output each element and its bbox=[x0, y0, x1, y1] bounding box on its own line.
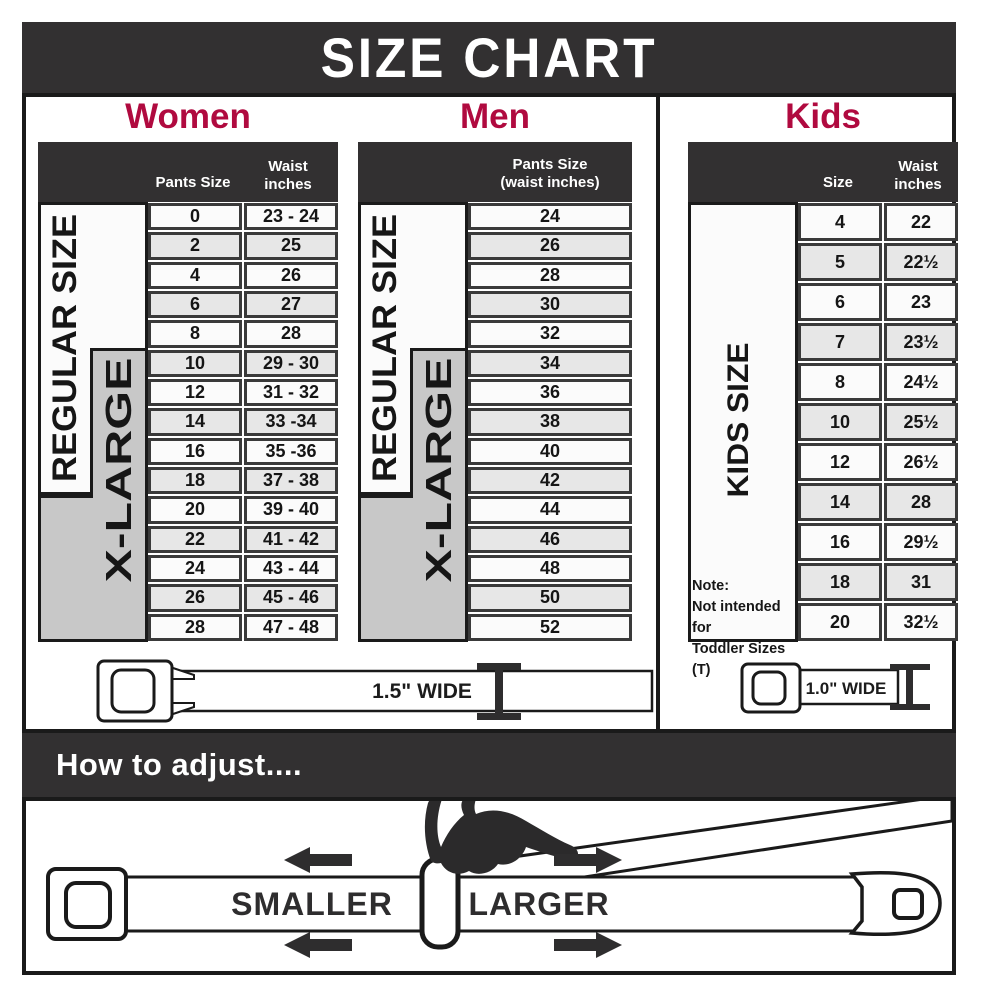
kids-belt-illustration: 1.0" WIDE bbox=[738, 652, 943, 724]
pants-size-cell: 38 bbox=[468, 408, 632, 435]
table-row: 10 25½ bbox=[798, 402, 958, 442]
pants-size-cell: 28 bbox=[468, 262, 632, 289]
waist-cell: 31 bbox=[884, 563, 958, 601]
table-row: 2 25 bbox=[148, 231, 338, 260]
size-cell: 4 bbox=[798, 203, 882, 241]
women-table-header: Pants Size Waist inches bbox=[38, 142, 338, 202]
table-row: 16 35 -36 bbox=[148, 437, 338, 466]
table-row: 42 bbox=[468, 466, 632, 495]
table-row: 44 bbox=[468, 495, 632, 524]
table-row: 28 47 - 48 bbox=[148, 613, 338, 642]
note-line: Note: bbox=[692, 576, 800, 597]
table-row: 14 28 bbox=[798, 482, 958, 522]
pants-size-cell: 10 bbox=[148, 350, 242, 377]
kids-section-title: Kids bbox=[688, 97, 958, 137]
size-chart-banner: SIZE CHART bbox=[22, 22, 956, 93]
kids-size-header: Size bbox=[798, 174, 878, 193]
men-table-header: Pants Size (waist inches) bbox=[358, 142, 632, 202]
table-row: 26 45 - 46 bbox=[148, 583, 338, 612]
adjust-heading: How to adjust.... bbox=[56, 747, 302, 783]
arrow-left-icon bbox=[284, 932, 352, 958]
panel-divider bbox=[656, 93, 660, 733]
pants-size-cell: 24 bbox=[468, 203, 632, 230]
table-row: 26 bbox=[468, 231, 632, 260]
size-cell: 8 bbox=[798, 363, 882, 401]
pants-size-cell: 46 bbox=[468, 526, 632, 553]
size-cell: 18 bbox=[798, 563, 882, 601]
table-row: 5 22½ bbox=[798, 242, 958, 282]
table-row: 30 bbox=[468, 290, 632, 319]
table-row: 4 22 bbox=[798, 202, 958, 242]
regular-size-label: REGULAR SIZE bbox=[366, 214, 404, 482]
kids-size-label: KIDS SIZE bbox=[722, 343, 755, 498]
pants-size-cell: 18 bbox=[148, 467, 242, 494]
table-row: 8 28 bbox=[148, 319, 338, 348]
table-row: 12 26½ bbox=[798, 442, 958, 482]
belt-tip-slot bbox=[894, 890, 922, 918]
waist-cell: 32½ bbox=[884, 603, 958, 641]
pants-size-cell: 2 bbox=[148, 232, 242, 259]
larger-label: LARGER bbox=[468, 886, 609, 922]
men-section-title: Men bbox=[358, 97, 632, 137]
pants-size-cell: 22 bbox=[148, 526, 242, 553]
buckle-window bbox=[66, 883, 110, 927]
pants-size-cell: 34 bbox=[468, 350, 632, 377]
buckle-window bbox=[112, 670, 154, 712]
waist-cell: 25 bbox=[244, 232, 338, 259]
waist-cell: 23 - 24 bbox=[244, 203, 338, 230]
table-row: 22 41 - 42 bbox=[148, 525, 338, 554]
waist-cell: 43 - 44 bbox=[244, 555, 338, 582]
arrow-left-icon bbox=[284, 847, 352, 873]
adjust-banner: How to adjust.... bbox=[22, 733, 956, 797]
table-row: 48 bbox=[468, 554, 632, 583]
table-row: 6 27 bbox=[148, 290, 338, 319]
waist-cell: 35 -36 bbox=[244, 438, 338, 465]
size-cell: 12 bbox=[798, 443, 882, 481]
xlarge-label: X-LARGE bbox=[418, 358, 459, 583]
size-cell: 20 bbox=[798, 603, 882, 641]
women-waist-header: Waist inches bbox=[238, 158, 338, 196]
pants-size-cell: 30 bbox=[468, 291, 632, 318]
waist-cell: 24½ bbox=[884, 363, 958, 401]
table-row: 36 bbox=[468, 378, 632, 407]
size-cell: 16 bbox=[798, 523, 882, 561]
waist-cell: 22 bbox=[884, 203, 958, 241]
pants-size-cell: 32 bbox=[468, 320, 632, 347]
size-cell: 5 bbox=[798, 243, 882, 281]
table-row: 7 23½ bbox=[798, 322, 958, 362]
size-cell: 10 bbox=[798, 403, 882, 441]
pants-size-cell: 4 bbox=[148, 262, 242, 289]
women-table-body: 0 23 - 24 2 25 4 26 6 27 8 28 10 29 - 30… bbox=[148, 202, 338, 642]
pants-size-cell: 16 bbox=[148, 438, 242, 465]
table-row: 16 29½ bbox=[798, 522, 958, 562]
size-chart-page: SIZE CHART Women Men Kids Pants Size Wai… bbox=[0, 0, 1000, 1000]
table-row: 52 bbox=[468, 613, 632, 642]
smaller-label: SMALLER bbox=[231, 886, 393, 922]
waist-cell: 25½ bbox=[884, 403, 958, 441]
waist-cell: 31 - 32 bbox=[244, 379, 338, 406]
waist-cell: 41 - 42 bbox=[244, 526, 338, 553]
pants-size-cell: 24 bbox=[148, 555, 242, 582]
pants-size-cell: 26 bbox=[468, 232, 632, 259]
regular-size-label: REGULAR SIZE bbox=[46, 214, 84, 482]
table-row: 14 33 -34 bbox=[148, 407, 338, 436]
table-row: 10 29 - 30 bbox=[148, 349, 338, 378]
note-line: Not intended for bbox=[692, 597, 800, 639]
waist-cell: 47 - 48 bbox=[244, 614, 338, 641]
page-title: SIZE CHART bbox=[321, 25, 658, 90]
waist-cell: 22½ bbox=[884, 243, 958, 281]
table-row: 32 bbox=[468, 319, 632, 348]
pants-size-cell: 42 bbox=[468, 467, 632, 494]
width-label: 1.0" WIDE bbox=[806, 679, 887, 698]
table-row: 20 32½ bbox=[798, 602, 958, 642]
waist-cell: 23½ bbox=[884, 323, 958, 361]
waist-cell: 29½ bbox=[884, 523, 958, 561]
table-row: 8 24½ bbox=[798, 362, 958, 402]
pants-size-cell: 48 bbox=[468, 555, 632, 582]
waist-cell: 39 - 40 bbox=[244, 496, 338, 523]
table-row: 4 26 bbox=[148, 261, 338, 290]
pants-size-cell: 50 bbox=[468, 584, 632, 611]
pants-size-cell: 6 bbox=[148, 291, 242, 318]
waist-cell: 37 - 38 bbox=[244, 467, 338, 494]
table-row: 24 bbox=[468, 202, 632, 231]
pants-size-cell: 14 bbox=[148, 408, 242, 435]
table-row: 18 31 bbox=[798, 562, 958, 602]
pants-size-cell: 40 bbox=[468, 438, 632, 465]
table-row: 40 bbox=[468, 437, 632, 466]
waist-cell: 45 - 46 bbox=[244, 584, 338, 611]
pants-size-cell: 44 bbox=[468, 496, 632, 523]
adult-belt-illustration: 1.5" WIDE bbox=[92, 655, 667, 730]
waist-cell: 33 -34 bbox=[244, 408, 338, 435]
women-size-range-sidebar: REGULAR SIZE X-LARGE bbox=[38, 202, 148, 642]
size-cell: 14 bbox=[798, 483, 882, 521]
table-row: 50 bbox=[468, 583, 632, 612]
table-row: 38 bbox=[468, 407, 632, 436]
pants-size-cell: 36 bbox=[468, 379, 632, 406]
table-row: 24 43 - 44 bbox=[148, 554, 338, 583]
men-table-body: 24 26 28 30 32 34 36 38 40 42 44 46 48 5… bbox=[468, 202, 632, 642]
waist-cell: 28 bbox=[884, 483, 958, 521]
kids-waist-header: Waist inches bbox=[878, 158, 958, 196]
waist-cell: 23 bbox=[884, 283, 958, 321]
table-row: 34 bbox=[468, 349, 632, 378]
width-label: 1.5" WIDE bbox=[372, 680, 472, 703]
men-size-range-sidebar: REGULAR SIZE X-LARGE bbox=[358, 202, 468, 642]
buckle-window bbox=[753, 672, 785, 704]
table-row: 12 31 - 32 bbox=[148, 378, 338, 407]
table-row: 28 bbox=[468, 261, 632, 290]
waist-cell: 29 - 30 bbox=[244, 350, 338, 377]
table-row: 18 37 - 38 bbox=[148, 466, 338, 495]
table-row: 46 bbox=[468, 525, 632, 554]
table-row: 6 23 bbox=[798, 282, 958, 322]
waist-cell: 26½ bbox=[884, 443, 958, 481]
arrow-right-icon bbox=[554, 932, 622, 958]
kids-table-header: Size Waist inches bbox=[688, 142, 958, 202]
table-row: 20 39 - 40 bbox=[148, 495, 338, 524]
pants-size-cell: 0 bbox=[148, 203, 242, 230]
adjust-illustration: SMALLER LARGER bbox=[26, 801, 952, 971]
waist-cell: 28 bbox=[244, 320, 338, 347]
table-row: 0 23 - 24 bbox=[148, 202, 338, 231]
pants-size-cell: 52 bbox=[468, 614, 632, 641]
women-pants-size-header: Pants Size bbox=[148, 174, 238, 193]
men-pants-size-header: Pants Size (waist inches) bbox=[468, 156, 632, 194]
pants-size-cell: 8 bbox=[148, 320, 242, 347]
pants-size-cell: 20 bbox=[148, 496, 242, 523]
pants-size-cell: 12 bbox=[148, 379, 242, 406]
xlarge-label: X-LARGE bbox=[98, 358, 139, 583]
women-section-title: Women bbox=[38, 97, 338, 137]
kids-table-body: 4 22 5 22½ 6 23 7 23½ 8 24½ 10 25½ 12 26… bbox=[798, 202, 958, 642]
size-cell: 6 bbox=[798, 283, 882, 321]
waist-cell: 27 bbox=[244, 291, 338, 318]
pants-size-cell: 26 bbox=[148, 584, 242, 611]
pants-size-cell: 28 bbox=[148, 614, 242, 641]
waist-cell: 26 bbox=[244, 262, 338, 289]
size-cell: 7 bbox=[798, 323, 882, 361]
